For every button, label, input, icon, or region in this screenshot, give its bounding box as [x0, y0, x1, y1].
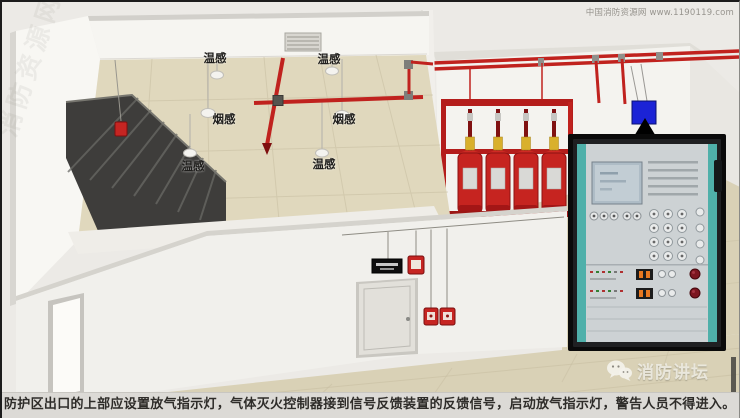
top-watermark: 中国消防资源网 www.1190119.com [586, 6, 734, 18]
rack-top-rail [441, 99, 573, 106]
wechat-watermark: 消防讲坛 [606, 358, 709, 383]
gas-cylinder [486, 151, 510, 214]
alarm-sounder [424, 308, 438, 325]
cabinet-handle [714, 160, 722, 192]
exit-door [356, 278, 418, 358]
gas-cylinder [458, 151, 482, 214]
wechat-watermark-text: 消防讲坛 [637, 358, 709, 383]
door-handle [406, 317, 410, 321]
fire-suppression-training-image: 消防资源网 中国消防资源网 www.1190119.com 温感 温感 烟感 烟… [0, 0, 740, 418]
manual-call-point [408, 256, 424, 274]
seven-segment-display [636, 288, 653, 299]
heat-detector-label: 温感 [182, 158, 205, 174]
wechat-icon [606, 359, 633, 382]
heat-detector [184, 149, 197, 157]
heat-detector-label: 温感 [318, 51, 341, 67]
control-panel-inset [568, 134, 726, 351]
gas-cylinder [542, 151, 566, 214]
ceiling-vent [285, 33, 321, 51]
panel-side-trim-left [577, 144, 586, 342]
heat-detector [326, 67, 339, 75]
start-button [690, 288, 700, 298]
caption-text: 防护区出口的上部应设置放气指示灯，气体灭火控制器接到信号反馈装置的反馈信号，启动… [2, 393, 739, 417]
gas-cylinder [514, 151, 538, 214]
smoke-detector-label: 烟感 [333, 111, 356, 127]
seven-segment-display [636, 269, 653, 280]
panel-lcd-display [592, 162, 642, 204]
heat-detector [211, 71, 224, 79]
doorway-opening [48, 293, 84, 403]
heat-detector-label: 温感 [204, 50, 227, 66]
3d-scene [2, 2, 740, 418]
gas-release-indicator-sign [372, 259, 402, 273]
pipe-junction [273, 96, 283, 106]
smoke-detector-label: 烟感 [213, 111, 236, 127]
start-button [690, 269, 700, 279]
heat-detector-label: 温感 [313, 156, 336, 172]
caption-bar: 防护区出口的上部应设置放气指示灯，气体灭火控制器接到信号反馈装置的反馈信号，启动… [2, 392, 739, 418]
alarm-strobe [440, 308, 455, 325]
